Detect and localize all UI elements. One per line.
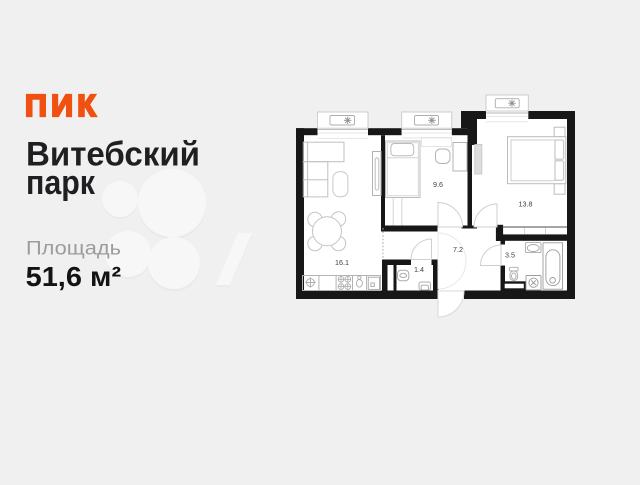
svg-text:1.4: 1.4 [414, 265, 424, 274]
svg-text:7.2: 7.2 [453, 245, 463, 254]
svg-text:51,6 м²: 51,6 м² [26, 261, 122, 292]
svg-text:Площадь: Площадь [26, 239, 121, 260]
svg-text:ПИК: ПИК [25, 89, 100, 123]
svg-text:9.6: 9.6 [433, 180, 443, 189]
svg-text:16.1: 16.1 [335, 258, 349, 267]
svg-text:13.8: 13.8 [519, 200, 533, 209]
svg-text:3.5: 3.5 [505, 251, 515, 260]
svg-text:парк: парк [26, 164, 96, 202]
